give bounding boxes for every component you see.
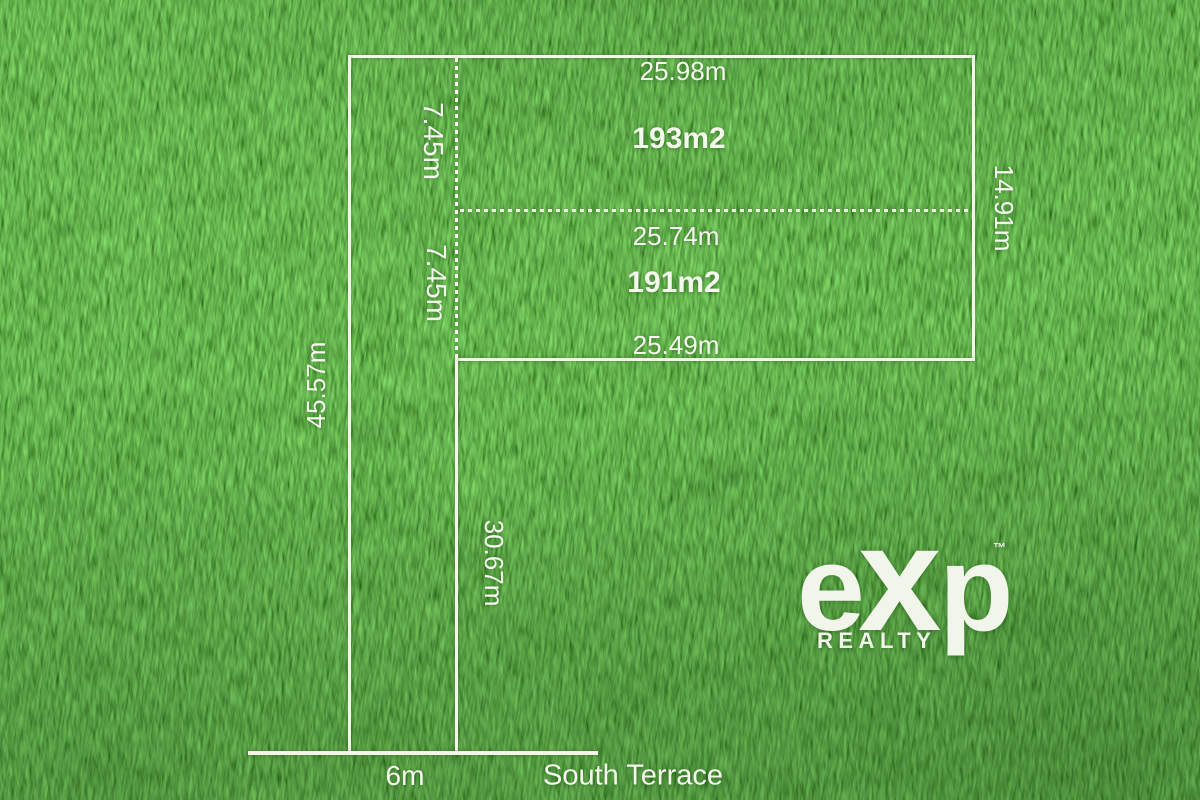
left-boundary-length-label: 45.57m [303, 342, 329, 429]
lot2-depth-label: 7.45m [422, 244, 450, 322]
lot2-bottom-width-label: 25.49m [633, 332, 720, 358]
boundary-line-left [348, 55, 351, 754]
inner-boundary-line [455, 358, 458, 754]
lot2-right-depth-label: 14.91m [991, 165, 1017, 252]
lot1-depth-label: 7.45m [419, 102, 447, 180]
frontage-width-label: 6m [386, 762, 425, 790]
street-frontage-line [248, 751, 598, 755]
lot2-area-label: 191m2 [627, 268, 720, 298]
logo-realty-text: REALTY [817, 630, 936, 652]
lot1-top-width-label: 25.98m [640, 58, 727, 84]
inner-boundary-length-label: 30.67m [481, 520, 507, 607]
grass-texture [0, 0, 1200, 800]
boundary-line-right [972, 55, 975, 361]
lot1-area-label: 193m2 [632, 124, 725, 154]
lot-divider-dotted-vertical [455, 58, 458, 358]
street-name-label: South Terrace [543, 762, 723, 791]
lot2-top-width-label: 25.74m [633, 223, 720, 249]
trademark-symbol: ™ [993, 541, 1006, 554]
lot-divider-dotted-horizontal [460, 209, 973, 212]
site-plan-scene: 25.98m 193m2 7.45m 25.74m 191m2 25.49m 7… [0, 0, 1200, 800]
